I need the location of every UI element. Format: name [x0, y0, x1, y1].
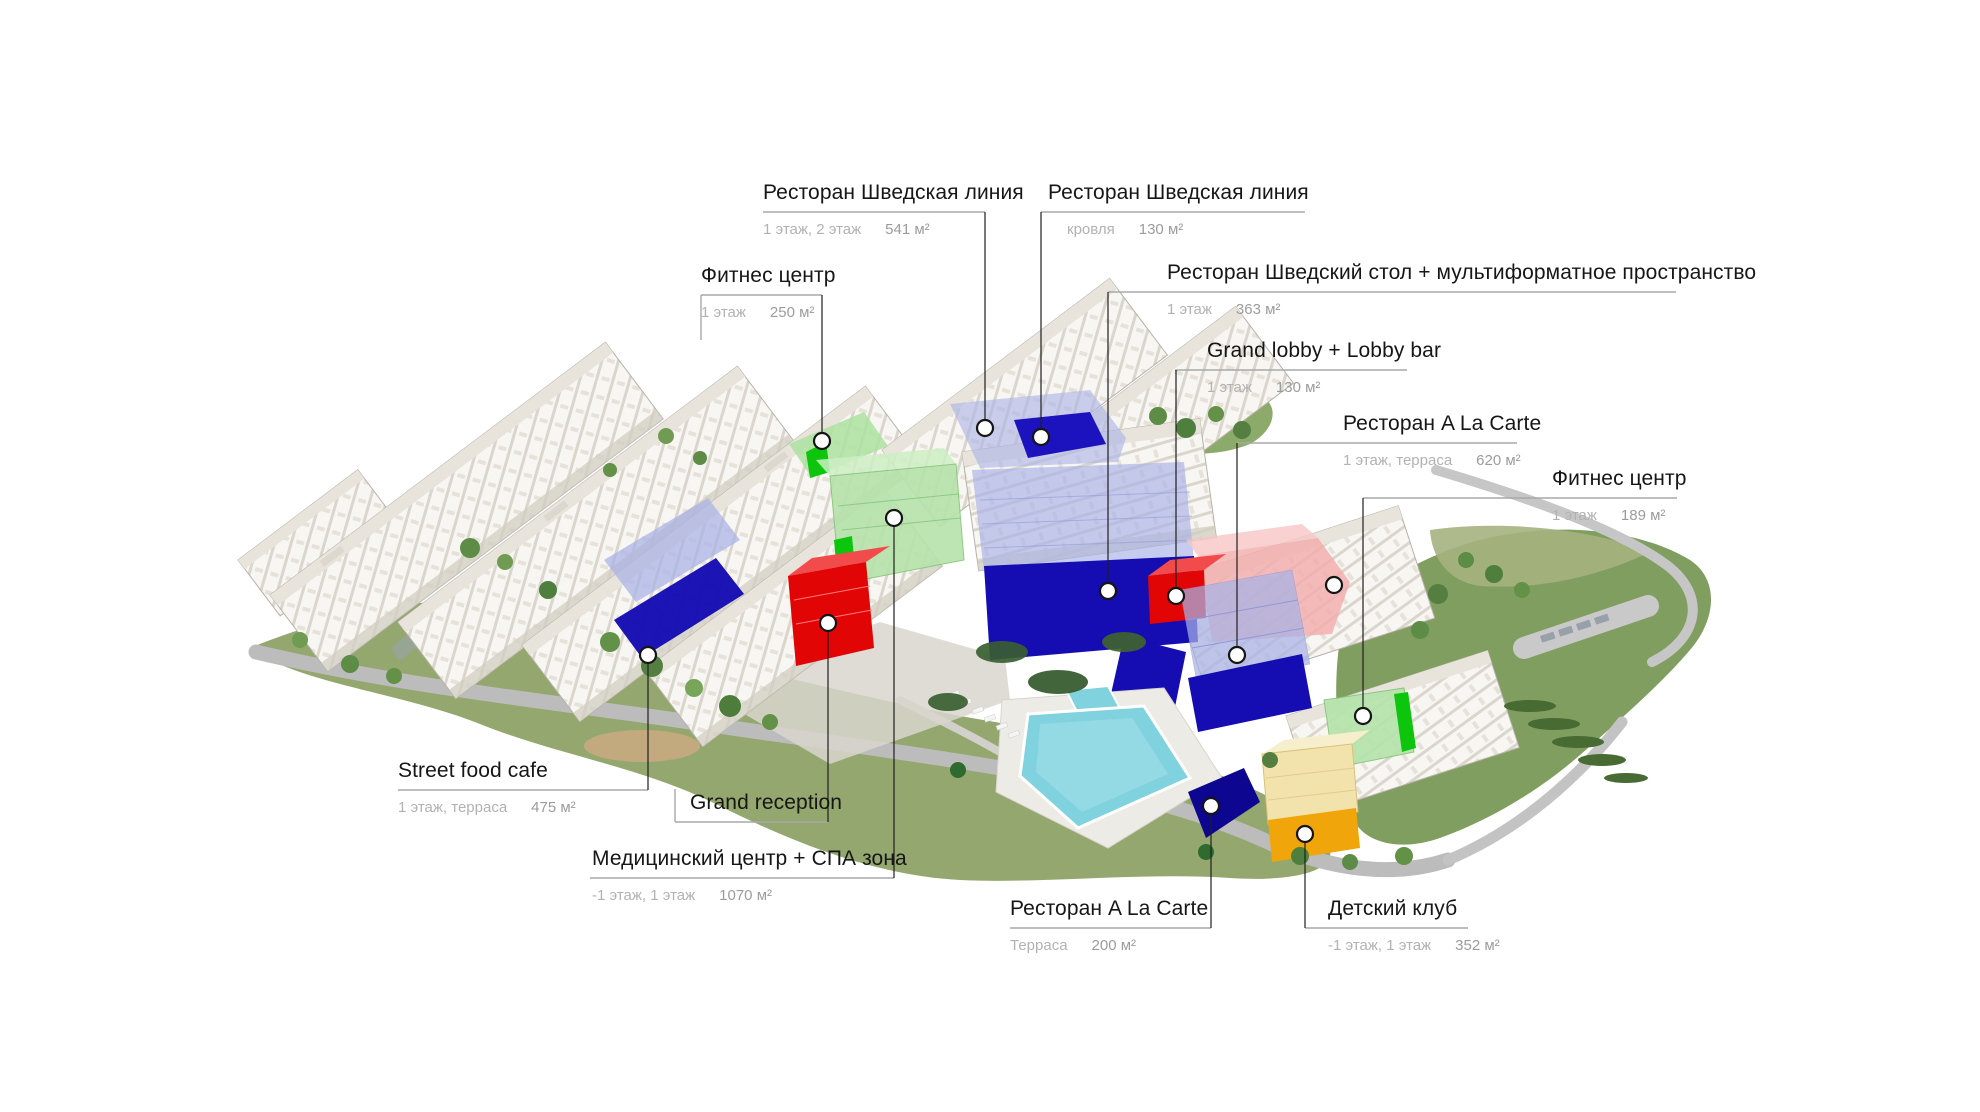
marker-grand-lobby[interactable]: [1168, 588, 1184, 604]
marker-restaurant-buffet-multiformat[interactable]: [1100, 583, 1116, 599]
sand-playground: [584, 730, 700, 762]
marker-restaurant-a-la-carte-terrace[interactable]: [1203, 798, 1219, 814]
marker-restaurant-a-la-carte[interactable]: [1229, 647, 1245, 663]
marker-street-food-cafe[interactable]: [640, 647, 656, 663]
highlight-west-red-cube: [788, 562, 874, 666]
marker-fitness-center-east[interactable]: [1355, 708, 1371, 724]
masterplan-render: [0, 0, 1980, 1112]
marker-roof-terrace-marker[interactable]: [1326, 577, 1342, 593]
marker-restaurant-swedish-line-roof[interactable]: [1033, 429, 1049, 445]
marker-kids-club[interactable]: [1297, 826, 1313, 842]
marker-fitness-center-west[interactable]: [814, 433, 830, 449]
marker-restaurant-swedish-line[interactable]: [977, 420, 993, 436]
marker-grand-reception[interactable]: [820, 615, 836, 631]
site-plan-stage: Ресторан Шведская линия1 этаж, 2 этаж541…: [0, 0, 1980, 1112]
marker-medical-center-spa[interactable]: [886, 510, 902, 526]
